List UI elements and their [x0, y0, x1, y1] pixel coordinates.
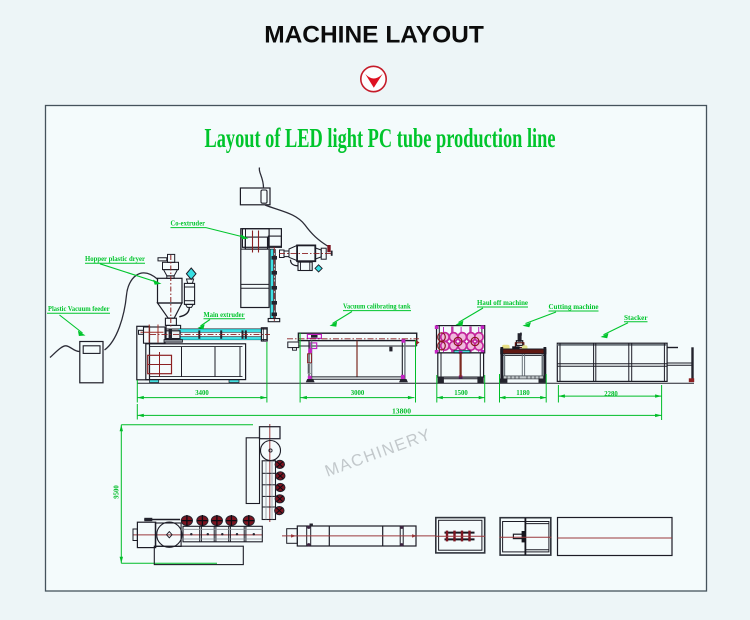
svg-text:1500: 1500	[454, 389, 468, 397]
svg-text:3000: 3000	[351, 389, 365, 397]
svg-text:Stacker: Stacker	[624, 313, 648, 322]
svg-text:3400: 3400	[195, 389, 209, 397]
svg-text:2280: 2280	[604, 390, 618, 398]
svg-text:13800: 13800	[392, 408, 411, 416]
svg-text:Layout of LED light PC tube pr: Layout of LED light PC tube production l…	[205, 123, 556, 153]
svg-text:Co-extruder: Co-extruder	[171, 219, 206, 228]
svg-text:Cutting machine: Cutting machine	[549, 302, 600, 311]
svg-text:Main extruder: Main extruder	[204, 310, 246, 319]
svg-text:Haul off machine: Haul off machine	[477, 298, 529, 307]
svg-text:9500: 9500	[113, 485, 121, 499]
svg-text:1180: 1180	[516, 389, 530, 397]
svg-text:Hopper plastic dryer: Hopper plastic dryer	[85, 254, 146, 263]
svg-text:Vacuum calibrating tank: Vacuum calibrating tank	[343, 302, 411, 311]
svg-text:Plastic Vacuum feeder: Plastic Vacuum feeder	[48, 304, 110, 313]
svg-text:MACHINE LAYOUT: MACHINE LAYOUT	[264, 22, 484, 49]
